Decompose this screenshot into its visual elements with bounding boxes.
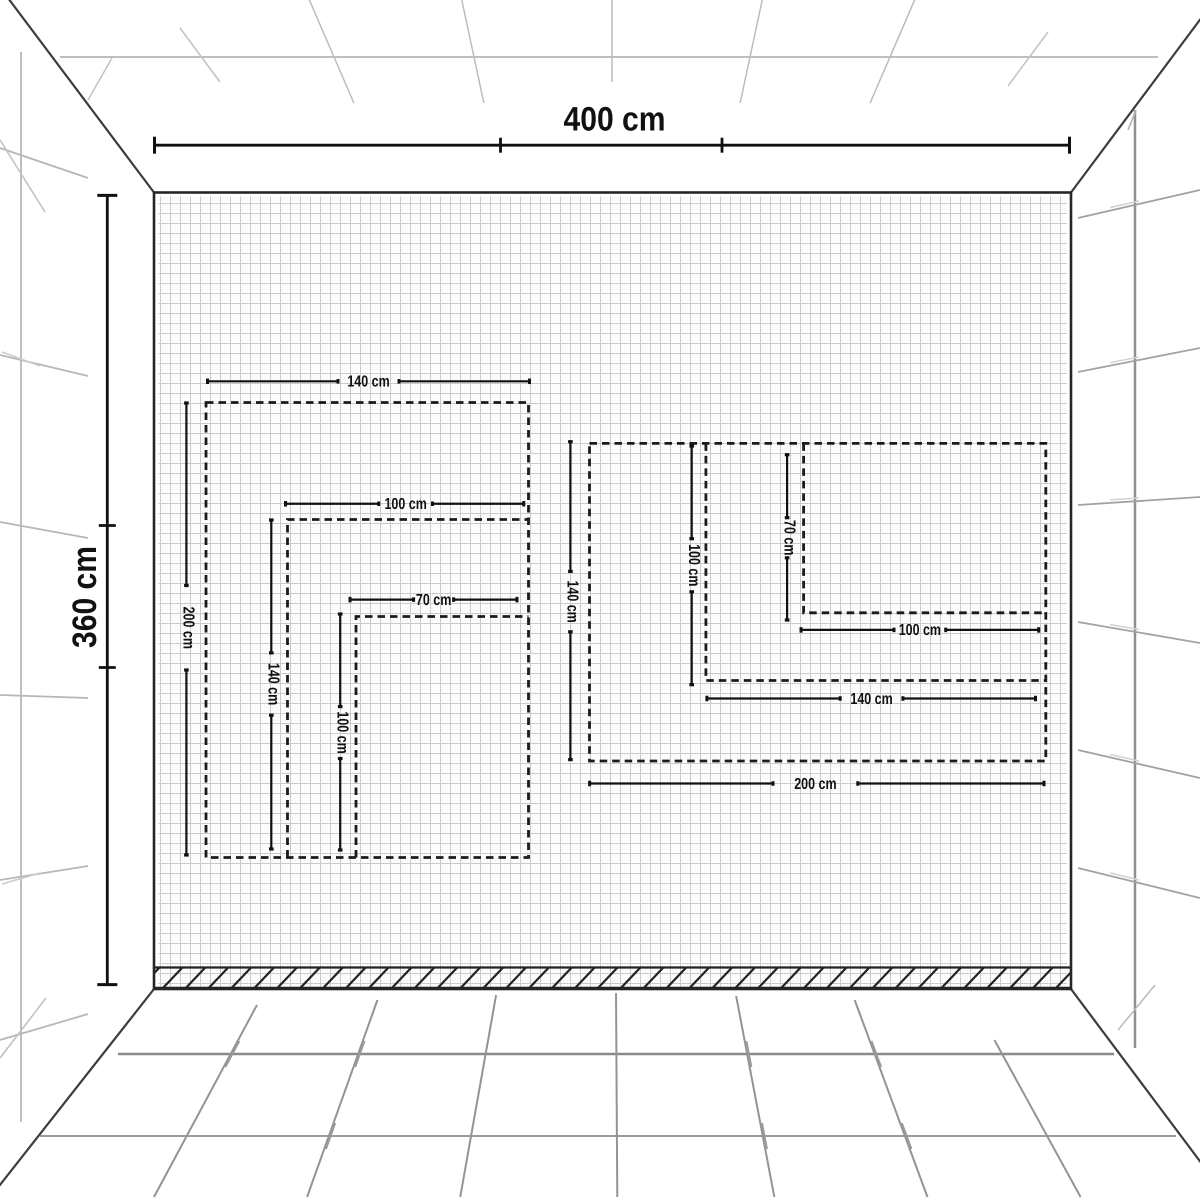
svg-text:140 cm: 140 cm [564, 580, 581, 622]
svg-text:100 cm: 100 cm [685, 544, 702, 586]
svg-text:140 cm: 140 cm [265, 663, 282, 705]
svg-text:200 cm: 200 cm [794, 776, 836, 793]
svg-text:200 cm: 200 cm [180, 607, 197, 649]
svg-text:140 cm: 140 cm [347, 374, 389, 391]
svg-text:100 cm: 100 cm [334, 711, 351, 753]
svg-text:360 cm: 360 cm [66, 546, 104, 648]
svg-text:100 cm: 100 cm [384, 496, 426, 513]
svg-text:70 cm: 70 cm [780, 520, 797, 555]
svg-text:100 cm: 100 cm [899, 622, 941, 639]
svg-text:140 cm: 140 cm [850, 691, 892, 708]
svg-text:70 cm: 70 cm [416, 592, 451, 609]
svg-text:400 cm: 400 cm [563, 101, 665, 139]
